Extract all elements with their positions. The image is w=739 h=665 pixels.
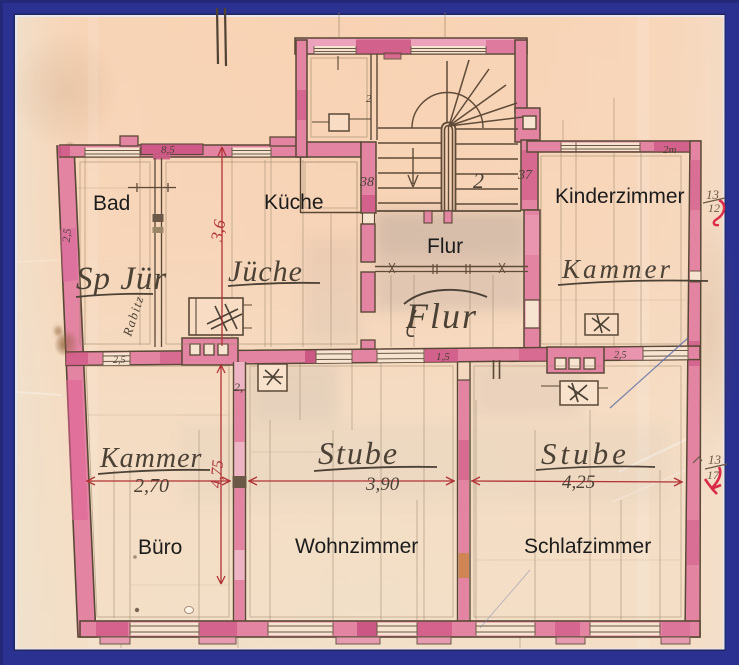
svg-text:2m: 2m [663,144,677,156]
svg-text:2,5: 2,5 [61,228,74,243]
svg-text:2,: 2, [234,380,243,394]
svg-text:3,90: 3,90 [365,474,400,495]
svg-text:13: 13 [708,452,722,467]
svg-text:38: 38 [359,175,374,190]
svg-text:2,70: 2,70 [134,475,169,497]
svg-text:Küche: Küche [264,191,324,214]
svg-text:37: 37 [517,168,533,183]
svg-text:Flur: Flur [405,296,478,336]
svg-text:1,5: 1,5 [436,351,450,363]
svg-text:Kinderzimmer: Kinderzimmer [555,185,685,208]
svg-text:Schlafzimmer: Schlafzimmer [524,535,651,558]
svg-text:8,5: 8,5 [161,144,175,156]
svg-text:2,5: 2,5 [614,350,627,361]
svg-text:4,75: 4,75 [208,459,227,488]
svg-text:17: 17 [707,468,720,482]
svg-text:Stube: Stube [318,435,399,471]
svg-text:12: 12 [708,201,720,215]
svg-text:2,5: 2,5 [113,355,126,366]
svg-text:2: 2 [366,93,372,105]
svg-text:4,25: 4,25 [562,472,595,493]
svg-text:Büro: Büro [138,536,182,559]
svg-text:Wohnzimmer: Wohnzimmer [295,535,418,558]
svg-text:2: 2 [473,168,484,193]
svg-text:3,6: 3,6 [207,218,230,244]
svg-text:Flur: Flur [427,235,463,258]
svg-text:Bad: Bad [93,192,130,215]
svg-text:Kammer: Kammer [561,254,673,284]
svg-text:Sp Jür: Sp Jür [76,261,167,297]
